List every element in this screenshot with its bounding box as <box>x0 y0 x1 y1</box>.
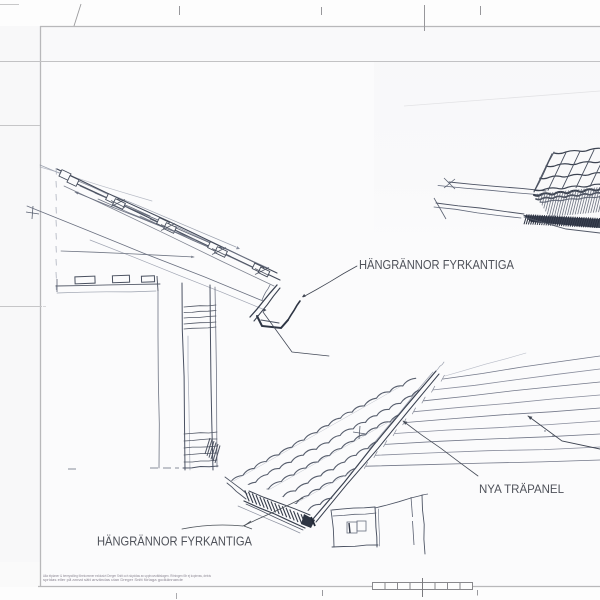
svg-text:spridas eller på annat sätt an: spridas eller på annat sätt användas uta… <box>43 578 183 582</box>
svg-text:NYA TRÄPANEL: NYA TRÄPANEL <box>479 482 564 496</box>
svg-text:HÄNGRÄNNOR FYRKANTIGA: HÄNGRÄNNOR FYRKANTIGA <box>97 535 253 549</box>
svg-text:HÄNGRÄNNOR FYRKANTIGA: HÄNGRÄNNOR FYRKANTIGA <box>359 258 515 272</box>
